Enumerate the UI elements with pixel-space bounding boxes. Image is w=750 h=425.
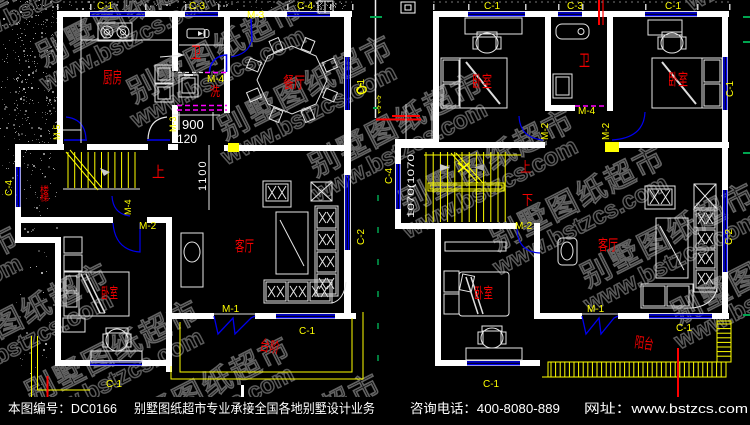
svg-text:120: 120 [177,132,197,146]
svg-text:C-4: C-4 [297,1,314,12]
svg-text:厨房: 厨房 [103,69,122,87]
svg-text:客厅: 客厅 [235,238,254,255]
svg-text:本图编号：DC0166: 本图编号：DC0166 [8,401,117,416]
svg-text:上: 上 [520,159,531,175]
svg-text:M-3: M-3 [247,10,265,21]
svg-text:台阶: 台阶 [258,337,281,357]
svg-text:M-4: M-4 [578,106,596,117]
svg-text:网址：www.bstzcs.com: 网址：www.bstzcs.com [584,401,748,416]
svg-text:客厅: 客厅 [598,237,618,254]
svg-text:M-4: M-4 [123,200,133,216]
svg-text:别墅图纸超市专业承接全国各地别墅设计业务: 别墅图纸超市专业承接全国各地别墅设计业务 [134,401,375,416]
svg-text:C-1: C-1 [665,1,682,12]
svg-text:卫: 卫 [579,53,590,70]
svg-text:C-1: C-1 [483,379,500,390]
svg-text:M-1: M-1 [587,304,605,315]
svg-text:饣: 饣 [376,94,385,105]
svg-text:卫: 卫 [191,45,201,62]
svg-text:洗: 洗 [210,84,220,99]
svg-text:C-1: C-1 [484,1,501,12]
svg-text:C-3: C-3 [189,1,206,12]
svg-text:M-2: M-2 [139,221,157,232]
svg-text:C-1: C-1 [299,326,316,337]
svg-text:M-1: M-1 [222,304,240,315]
svg-text:1100: 1100 [197,159,209,191]
svg-text:M-3: M-3 [168,117,178,133]
svg-text:M-2: M-2 [540,122,551,140]
svg-text:C-4: C-4 [4,179,15,196]
svg-text:C-2: C-2 [356,228,367,245]
svg-text:上: 上 [152,164,165,181]
svg-text:1070(1070: 1070(1070 [406,154,416,218]
svg-text:餐厅: 餐厅 [283,74,305,92]
svg-text:C-1: C-1 [676,323,693,334]
svg-text:卧室: 卧室 [474,285,493,302]
svg-text:卧室: 卧室 [472,73,492,91]
svg-text:卧室: 卧室 [668,71,688,89]
svg-text:C-3: C-3 [567,1,584,12]
svg-text:咨询电话：400-8080-889: 咨询电话：400-8080-889 [410,401,560,416]
svg-text:下: 下 [522,192,533,208]
svg-text:C-2: C-2 [724,228,735,245]
svg-text:饣: 饣 [376,104,385,115]
svg-text:M-2: M-2 [515,221,533,232]
svg-text:阳台: 阳台 [633,334,654,353]
svg-text:900: 900 [182,117,204,132]
svg-text:C-4: C-4 [384,167,395,184]
svg-text:M-2: M-2 [601,122,612,140]
svg-text:卧室: 卧室 [101,285,118,302]
svg-text:M-5: M-5 [52,125,62,141]
svg-text:梯: 梯 [40,192,49,203]
svg-text:C-1: C-1 [725,80,736,97]
svg-text:C-1: C-1 [97,1,114,12]
svg-text:C-1: C-1 [106,379,123,390]
